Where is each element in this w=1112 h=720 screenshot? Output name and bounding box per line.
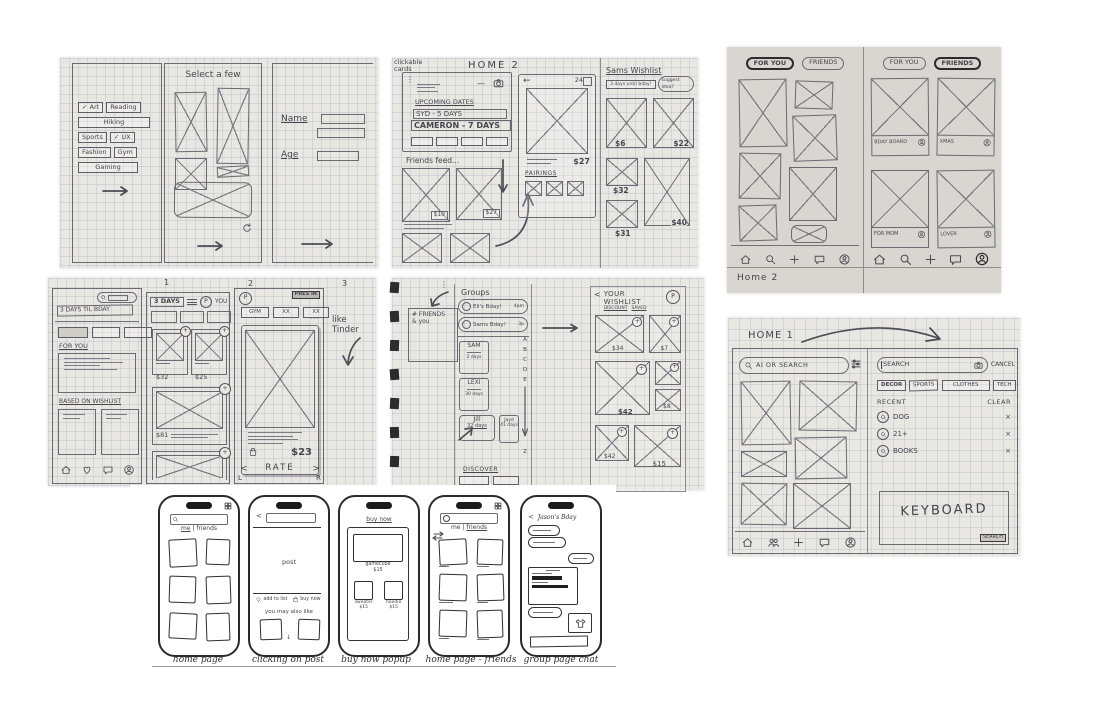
shirt-icon (574, 617, 587, 630)
screen-foryou: FOR YOU FRIENDS (731, 53, 859, 265)
friend-post (477, 610, 505, 640)
recent-label: RECENT (877, 399, 906, 406)
search-icon (172, 516, 179, 523)
mini-chip-row (411, 137, 508, 146)
bottom-nav (867, 247, 995, 271)
search-value: SEARCH (881, 361, 909, 368)
board-card: LOVER (936, 170, 995, 249)
saved-label: SAVED (631, 306, 646, 311)
discount-label: DISCOUNT (604, 306, 628, 311)
remove-recent-icon: × (1005, 430, 1011, 438)
popup-product: sweater$15 (355, 600, 373, 610)
search-icon (100, 294, 107, 301)
masonry-image (792, 114, 838, 162)
photo-flow-sketch: 1 2 3 3 DAYS TIL BDAY FOR YOU BASED ON W… (48, 278, 376, 486)
masonry-image (739, 153, 782, 200)
price-label: $22 (673, 140, 689, 149)
feed-tabs: me | friends (160, 526, 238, 533)
home1-frame: AI OR SEARCH (732, 348, 1018, 554)
friend-post (439, 610, 469, 640)
sams-wishlist-column: Sams Wishlist 3 days until bday! suggest… (606, 66, 694, 264)
message-icon (948, 252, 963, 267)
mood-image (174, 92, 207, 153)
group-time: 3p (518, 322, 524, 327)
related-thumb (260, 619, 283, 641)
grid-icon (223, 501, 233, 511)
search-input: SEARCH (877, 357, 988, 373)
mockup-caption: group page chat (506, 655, 616, 667)
group-row: Eli's Bday! 4pm (458, 299, 528, 314)
interest-chip-fashion: Fashion (78, 147, 111, 158)
bday-countdown-chip: 3 days until bday! (606, 80, 656, 89)
flow-screen-2: 3 DAYS P YOU + $32 + $25 (146, 292, 230, 484)
like-tinder-note: like Tinder (332, 316, 372, 336)
wishlist-item: + (655, 361, 681, 385)
photo-home2-sketch: clickablecards HOME 2 ⋮ — UPCOMING DATES… (392, 58, 698, 268)
pass-in-box: PRES IN (292, 291, 320, 299)
phone-notch (548, 502, 574, 509)
discover-label: DISCOVER (463, 467, 531, 474)
refresh-icon (241, 222, 253, 234)
profile-icon (838, 253, 851, 266)
detail-image (526, 88, 588, 154)
age-label: Age (281, 150, 298, 160)
bday-banner: 3 DAYS TIL BDAY (57, 304, 133, 316)
right-key-label: R (316, 474, 321, 482)
bottom-nav (735, 533, 863, 551)
search-bar (266, 513, 316, 523)
name-input-2 (317, 128, 365, 138)
pairings-label: PAIRINGS (525, 171, 557, 178)
mockup-strip: me | friends home page < post (130, 485, 616, 685)
wishlist-item: + $15 (634, 425, 681, 467)
photo-tabs-sketch: FOR YOU FRIENDS FOR YOU FRIENDS (727, 47, 1001, 293)
profile-icon (123, 464, 135, 476)
category-chip-tech: TECH (993, 380, 1016, 391)
member-avatar-icon (917, 138, 926, 147)
search-icon (764, 253, 777, 266)
mood-image (217, 165, 250, 178)
home-icon (739, 253, 752, 266)
search-bar (440, 513, 498, 524)
swipe-card: $23 (241, 325, 319, 475)
mockup-home-friends: me | friends (428, 495, 510, 657)
profile-badge: P (200, 296, 212, 308)
save-icon (583, 77, 592, 86)
you-may-like-label: you may also like (250, 609, 328, 615)
feed-card: $10 (402, 168, 450, 222)
flow-screen-1: 3 DAYS TIL BDAY FOR YOU BASED ON WISHLIS… (52, 288, 142, 484)
chat-bubble-left (528, 607, 562, 618)
bag-icon (292, 596, 299, 603)
add-plus-badge: + (219, 383, 231, 395)
flow-screen-3: P PRES IN GYM XX XX ... $23 (234, 288, 324, 484)
rate-bar: < RATE > (240, 464, 320, 474)
tab-friends-active: friends (466, 524, 487, 531)
post-thumb (168, 538, 197, 567)
popup-product-image (384, 581, 403, 600)
plus-icon (788, 253, 801, 266)
pairing-thumb (567, 181, 584, 196)
arrow-right-icon (299, 238, 339, 250)
member-avatar-icon (917, 230, 926, 239)
wishlist-item: $40 (644, 158, 690, 226)
photo-onboarding-sketch: ✓ Art Reading Hiking Sports ✓ UX Fashion… (60, 58, 378, 268)
interest-chip-art: ✓ Art (78, 102, 103, 113)
arrow-right-icon (540, 322, 584, 334)
for-you-label: FOR YOU (59, 343, 88, 350)
pairing-thumb (546, 181, 563, 196)
ai-search-label: AI OR SEARCH (756, 362, 808, 369)
related-thumb (298, 619, 321, 641)
category-chip-clothes: CLOTHES (942, 380, 990, 391)
tab-me: me (181, 525, 191, 532)
curved-arrow (798, 322, 948, 348)
friend-post (477, 539, 505, 567)
doodle-scribble (417, 81, 443, 94)
plus-icon (923, 252, 938, 267)
popup-product: hoodie$15 (386, 600, 401, 610)
name-label: Name (281, 114, 308, 124)
masonry-image (795, 437, 848, 480)
chat-bubble-left (528, 537, 566, 548)
masonry-image (738, 79, 787, 148)
message-icon (818, 536, 831, 549)
filter-chip-gym: GYM (241, 307, 269, 318)
search-icon (880, 414, 887, 421)
popup-title: buy now (340, 517, 418, 524)
interest-chip-gym: Gym (114, 147, 137, 158)
spiral-binding (390, 282, 399, 467)
interest-chip-ux: ✓ UX (110, 132, 135, 143)
board-label: BDAY BOARD (874, 140, 915, 146)
mockup-group-chat: < Jason's Bday (520, 495, 602, 657)
upcoming-row-cameron: CAMERON - 7 DAYS (411, 120, 511, 131)
mockup-buy-popup: buy now gamecube $15 sweater$15 hoodie$1… (338, 495, 420, 657)
wishlist-item: + $42 (595, 361, 650, 415)
price-label: $25 (195, 373, 207, 381)
back-chevron: < (256, 512, 262, 520)
wishlist-item: + $7 (649, 315, 681, 353)
friend-post (439, 539, 469, 567)
minus-glyph: — (477, 79, 485, 88)
post-actions: add to list buy now (253, 596, 323, 603)
left-key-label: L (238, 474, 242, 482)
recent-query: BOOKS (893, 447, 918, 455)
interest-chip-gaming: Gaming (78, 162, 138, 173)
people-icon (767, 536, 780, 549)
wishlist-item: $6 (606, 98, 647, 148)
down-arrow-glyph: ↓ (286, 635, 291, 642)
profile-icon (844, 536, 857, 549)
board-card: FOR MOM (871, 170, 929, 248)
price-label: $23 (291, 447, 312, 459)
board-card: BDAY BOARD (871, 78, 930, 157)
bag-icon (248, 447, 258, 457)
post-thumb (169, 576, 197, 604)
mini-list-box (180, 311, 204, 323)
tab-friends: friends (196, 525, 217, 532)
ai-search-pill: AI OR SEARCH (739, 357, 849, 374)
mini-list-box (207, 311, 231, 323)
screen-friends: FOR YOU FRIENDS BDAY BOARD XMAS (867, 53, 997, 265)
recent-query: DOG (893, 413, 909, 421)
share-count: 24 (575, 77, 583, 84)
arrow-right-icon (100, 185, 134, 197)
filter-sliders-icon (849, 357, 863, 371)
photo-home1-sketch: HOME 1 AI OR SEARCH (728, 318, 1020, 556)
masonry-image (793, 483, 851, 529)
home1-screen: AI OR SEARCH (733, 349, 867, 553)
upcoming-dates-label: UPCOMING DATES (415, 99, 474, 106)
friends-note-box: # FRIENDS& you (408, 308, 458, 362)
wishlist-item: + $34 (595, 315, 644, 353)
remove-recent-icon: × (1005, 447, 1011, 455)
heart-hands-icon (81, 464, 93, 476)
price-label: $42 (604, 454, 615, 461)
rate-label: RATE (265, 464, 294, 474)
panel-title: Select a few (165, 70, 261, 80)
recent-row: BOOKS × (877, 445, 1011, 457)
post-thumb (206, 576, 232, 605)
tab-for-you: FOR YOU (883, 57, 926, 70)
category-chip-sports: SPORTS (909, 379, 939, 391)
board-label: LOVER (940, 232, 981, 238)
add-plus-badge: + (219, 447, 231, 459)
mockup-home-page: me | friends (158, 495, 240, 657)
popup-product-price: $15 (348, 568, 408, 574)
rail-down-arrow (521, 385, 529, 443)
feed-caption-scribble (404, 224, 484, 229)
poll-card (528, 567, 578, 605)
home1-title: HOME 1 (748, 330, 794, 342)
profile-icon (974, 251, 990, 267)
check-icon: ✓ (82, 103, 87, 111)
message-icon (813, 253, 826, 266)
keyboard-search-key: SEARCH (980, 534, 1006, 542)
shared-item-bubble (568, 613, 592, 633)
photo-groups-sketch: ⋮ # FRIENDS& you Groups Eli's Bday! 4pm … (392, 278, 704, 490)
friend-post (439, 574, 469, 603)
post-thumb (206, 613, 231, 642)
cancel-button: CANCEL (991, 362, 1015, 369)
up-right-arrow (457, 426, 475, 442)
camera-icon (492, 77, 505, 90)
profile-badge: P (666, 290, 680, 304)
mood-image (216, 88, 249, 165)
sketch-board: ✓ Art Reading Hiking Sports ✓ UX Fashion… (0, 0, 1112, 720)
wishlist-card (101, 409, 139, 455)
masonry-image (795, 80, 834, 109)
age-input (317, 151, 359, 161)
mockup-post-detail: < post add to list buy now you may also … (248, 495, 330, 657)
price-label: $42 (618, 408, 633, 416)
post-thumb (206, 539, 231, 566)
search-bar (170, 514, 228, 525)
tab-for-you-active: FOR YOU (746, 57, 795, 70)
feed-card (58, 353, 136, 393)
product-card: + $32 (152, 329, 188, 375)
chat-bubble-left (528, 525, 560, 536)
popup-product-image (353, 534, 403, 562)
chat-title: Jason's Bday (538, 514, 576, 521)
mood-image-wide (174, 182, 252, 219)
masonry-image (741, 483, 788, 526)
recent-query: 21+ (893, 430, 908, 438)
keyboard-label: KEYBOARD (880, 502, 1008, 521)
bottom-nav (55, 461, 139, 479)
buy-popup-card: gamecube $15 sweater$15 hoodie$15 (347, 527, 409, 641)
pairing-thumb (525, 181, 542, 196)
add-plus-badge: + (180, 326, 191, 337)
filter-chip: XX (273, 307, 299, 318)
interest-chip-hiking: Hiking (78, 117, 150, 128)
interest-chip-reading: Reading (106, 102, 140, 113)
recent-row: 21+ × (877, 428, 1011, 440)
price-label: $6 (615, 140, 625, 149)
masonry-image (738, 204, 777, 241)
group-row: Sams Bday! 3p (458, 317, 528, 332)
days-filter: 3 DAYS (150, 297, 184, 306)
back-arrow-icon: ← (523, 76, 531, 86)
member-avatar-icon (983, 139, 992, 148)
grid-icon (493, 501, 503, 511)
price-label: $81 (156, 432, 168, 439)
menu-dots-icon: ⋮ (406, 75, 414, 84)
page-number: 2 (248, 279, 253, 288)
friend-card: SAM2 days (459, 341, 489, 374)
price-label: $7 (660, 346, 668, 353)
recent-row: DOG × (877, 411, 1011, 423)
phone-notch (366, 502, 392, 509)
friend-post (477, 574, 505, 603)
feed-card (402, 233, 442, 263)
wishlist-title: YOUR (604, 290, 647, 298)
add-to-list-button: add to list (263, 597, 287, 603)
friend-card: LEXI30 days (459, 378, 489, 411)
wishlist-item: + $42 (595, 425, 629, 461)
price-label: $32 (156, 373, 168, 381)
search-icon (898, 252, 913, 267)
panel-interests: ✓ Art Reading Hiking Sports ✓ UX Fashion… (72, 63, 162, 263)
group-name: Sams Bday! (473, 322, 506, 328)
price-label: $40 (671, 219, 687, 228)
board-label: XMAS (940, 140, 981, 146)
mockup-caption: clicking on post (236, 655, 340, 667)
masonry-image (741, 451, 787, 477)
clear-button: CLEAR (987, 399, 1011, 406)
phone-notch (186, 502, 212, 509)
tab-me: me (451, 524, 461, 531)
friend-card: Jayd41 days (499, 415, 519, 443)
price-label: $15 (653, 460, 666, 468)
profile-badge: P (239, 292, 252, 305)
buy-now-button: buy now (300, 597, 320, 603)
mockup-caption: home page (152, 655, 244, 667)
home2-title: HOME 2 (468, 60, 520, 72)
based-on-wishlist-label: BASED ON WISHLIST (59, 399, 121, 406)
price-tag: $10 (431, 211, 448, 220)
back-chevron: < (528, 513, 534, 521)
groups-title: Groups (461, 288, 531, 297)
sheet-caption: Home 2 (737, 273, 778, 283)
mockup-caption: buy now popup (326, 655, 426, 667)
wishlist-title: Sams Wishlist (606, 66, 694, 75)
product-card-large: + $81 (152, 387, 227, 445)
wishlist-item: $31 (606, 200, 638, 228)
search-icon (744, 361, 753, 370)
price-label: $31 (615, 230, 631, 239)
interest-chip-sports: Sports (78, 132, 107, 143)
feed-card (450, 233, 490, 263)
panel-profile-form: Name Age (272, 63, 373, 263)
post-placeholder: post (250, 559, 328, 566)
price-label: $34 (612, 346, 623, 353)
group-name: Eli's Bday! (473, 304, 502, 310)
detail-price: $27 (573, 157, 590, 166)
ellipsis: ... (310, 315, 319, 322)
search-icon (880, 431, 887, 438)
search-pill (97, 292, 137, 303)
chat-input (530, 635, 588, 647)
mini-list-box (151, 311, 177, 323)
wishlist-item: $32 (606, 158, 638, 186)
suggest-idea-pill: suggest idea? (658, 76, 694, 92)
swipe-right-chevron: > (312, 464, 320, 474)
message-icon (102, 464, 114, 476)
home-icon (872, 252, 887, 267)
home-icon (741, 536, 754, 549)
search-overlay-screen: SEARCH CANCEL DECOR SPORTS CLOTHES TECH … (873, 349, 1017, 553)
check-icon: ✓ (114, 133, 119, 141)
phone-notch (456, 502, 482, 509)
remove-recent-icon: × (1005, 413, 1011, 421)
search-icon (880, 448, 887, 455)
category-chip-decor: DECOR (877, 380, 906, 391)
masonry-image (740, 381, 791, 446)
price-label: $32 (613, 187, 629, 196)
small-arrow (428, 290, 450, 308)
add-plus-badge: + (219, 326, 230, 337)
page-number: 1 (164, 278, 169, 287)
board-label: FOR MOM (874, 232, 915, 238)
heart-icon (255, 596, 262, 603)
camera-icon (973, 360, 984, 371)
phone-notch (276, 502, 302, 509)
curved-arrow (336, 336, 366, 370)
back-chevron: < (594, 290, 601, 311)
arrow-right-icon (195, 240, 229, 252)
bottom-nav (733, 249, 857, 269)
wishlist-item: $22 (653, 98, 694, 148)
popup-product-image (354, 581, 373, 600)
price-label: $8 (663, 404, 671, 411)
alphabet-rail: ABC DE Z (520, 336, 530, 458)
you-label: YOU (215, 299, 227, 306)
product-detail-card: ← 24 $27 PAIRINGS (518, 74, 596, 218)
masonry-image (789, 167, 837, 221)
masonry-image (791, 225, 827, 243)
name-input (321, 114, 365, 124)
page-number: 3 (342, 279, 347, 288)
tab-friends: FRIENDS (802, 57, 844, 70)
product-card: + $25 (191, 329, 227, 375)
board-card: XMAS (936, 78, 995, 157)
panel-moodboard: Select a few (164, 63, 262, 263)
swipe-left-chevron: < (240, 464, 248, 474)
upcoming-row-syd: SYD - 5 DAYS (413, 109, 507, 119)
tab-friends-active: FRIENDS (934, 57, 982, 70)
